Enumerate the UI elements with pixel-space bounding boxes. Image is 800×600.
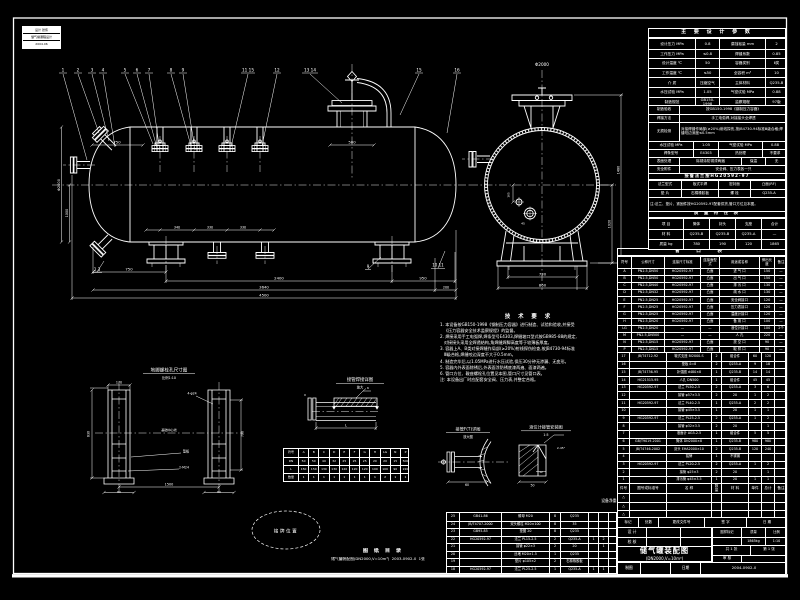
- param-table-header: 主 要 设 计 参 数: [648, 28, 786, 38]
- cell: 石棉橡胶板: [681, 190, 718, 197]
- cell: 14: [761, 369, 774, 376]
- cell: GB/T9019-2001: [629, 439, 666, 446]
- nozzle-length-table: 符号ABCDEFGHLGNPDN50504032252525202015500L…: [283, 448, 409, 482]
- cell: 32: [329, 458, 339, 465]
- cell: 对接焊缝作局部(≥20%)射线探伤,按JB4730-94标准Ⅲ级合格;焊缝咬边深…: [679, 123, 786, 141]
- table-row: 12接管 φ57×3.522012: [618, 391, 785, 399]
- cell: 不要求: [762, 150, 786, 157]
- cell: 液面计 AG5-2.5: [666, 431, 711, 438]
- cell: 100: [369, 466, 379, 473]
- cell: [774, 423, 786, 430]
- cell: 制图: [618, 563, 640, 574]
- table-row: GPN2.5,DN25HG20592-97凸面温度计接口120—: [618, 311, 785, 318]
- note-line: 注: 本设备出厂时应配套安全阀、压力表,并整定合格。: [440, 377, 618, 383]
- cell: HG20592-97: [629, 400, 666, 407]
- notes-title: 技 术 要 求: [440, 312, 618, 322]
- annotation: 330: [207, 226, 213, 230]
- annotation: 12: [274, 68, 280, 73]
- tank-head-right: [415, 127, 456, 242]
- annotation: 2400: [274, 276, 284, 281]
- technical-notes: 技 术 要 求 1. 本设备按GB150-1998《钢制压力容器》进行制造、试验…: [440, 312, 618, 383]
- cell: 备注: [774, 257, 786, 268]
- table-row: L15015013013012012012010010090220: [284, 465, 408, 473]
- cell: JB/T4746-2002: [629, 446, 666, 453]
- cell: 3: [618, 462, 629, 469]
- cell: [774, 431, 786, 438]
- cell: 3: [748, 385, 761, 392]
- cell: 1: [711, 454, 721, 461]
- cell: [608, 567, 617, 574]
- cell: 组合件: [721, 431, 748, 438]
- cell: [774, 454, 786, 461]
- cell: 1: [711, 408, 721, 415]
- cell: [774, 469, 786, 476]
- annotation: 9: [367, 264, 370, 269]
- cell: 1: [298, 474, 308, 481]
- cell: 工作温度 ℃: [649, 69, 695, 78]
- annotation: 2-M24: [179, 466, 189, 470]
- cell: 40: [318, 458, 328, 465]
- cell: Q235-A: [721, 385, 748, 392]
- annotation: 200: [443, 286, 449, 290]
- drawing-index-entry: 储气罐装配图(DN2000,V=10m³) 2003-0902-0 1张: [302, 557, 454, 563]
- cell: 接管 φ25×3: [666, 469, 711, 476]
- cell: [629, 454, 666, 461]
- annotation: 1: [62, 68, 65, 73]
- design-parameters-table: 设计压力 MPa0.8腐蚀裕量 mm2工作压力 MPa≤0.8焊缝系数0.85设…: [648, 38, 786, 107]
- stamp-row: 2004.06: [23, 40, 60, 47]
- cell: 不锈钢: [721, 454, 748, 461]
- cell: 90: [390, 466, 400, 473]
- cell: [774, 439, 786, 446]
- annotation: 500: [348, 140, 356, 145]
- cell: 220: [400, 466, 409, 473]
- saddle-supports: [147, 242, 411, 263]
- cell: 12: [618, 392, 629, 399]
- cell: 全容积 m³: [719, 69, 765, 78]
- cell: 数量: [284, 474, 298, 481]
- cell: 120: [349, 466, 359, 473]
- cell: 18: [761, 362, 774, 369]
- cell: [680, 538, 712, 546]
- cell: [629, 392, 666, 399]
- cell: 补强圈 d480×8: [666, 369, 711, 376]
- bottom-nozzles: [208, 242, 274, 258]
- cell: [774, 416, 786, 423]
- annotation: 地脚螺栓孔尺寸图: [151, 367, 188, 374]
- cell: △: [618, 503, 629, 510]
- cell: 0.88: [762, 142, 786, 149]
- annotation: 接管F(T)详图: [456, 426, 481, 433]
- cell: 2: [711, 392, 721, 399]
- cell: 1: [711, 369, 721, 376]
- annotation: 6: [136, 68, 139, 73]
- cell: 50: [298, 458, 308, 465]
- cell: 190: [709, 240, 735, 249]
- cell: Q235-A: [721, 362, 748, 369]
- table-row: CPN2.5,DN40HG20592-97凸面排 污 口130—: [618, 282, 785, 289]
- cell: 25: [359, 458, 369, 465]
- cell: Q235-A: [750, 190, 786, 197]
- table-row: 15JB/T4736-95补强圈 d480×81Q235-B1414: [618, 368, 785, 376]
- annotation: 放大图: [463, 434, 473, 439]
- cell: 2: [761, 416, 774, 423]
- cell: 5: [748, 431, 761, 438]
- cell: [721, 503, 748, 510]
- annotation: 11 15: [242, 68, 254, 73]
- cell: G: [359, 449, 369, 457]
- table-row: 无损检测对接焊缝作局部(≥20%)射线探伤,按JB4730-94标准Ⅲ级合格;焊…: [649, 122, 785, 141]
- cell: 2: [618, 469, 629, 476]
- table-row: HPN2.5,DN20HG20592-97凸面备 用 口100—: [618, 318, 785, 325]
- cell: 无: [765, 158, 786, 165]
- cell: [774, 385, 786, 392]
- cell: 筒体 DN2000×8: [666, 439, 711, 446]
- annotation: 4: [102, 68, 105, 73]
- cell: [711, 494, 721, 502]
- cell: 伸出长度: [759, 257, 774, 268]
- cell: HG20592-97: [629, 385, 666, 392]
- annotation: 1000: [65, 209, 69, 217]
- cell: 日期: [670, 563, 700, 574]
- table-row: 17JB/T4712-92鞍式支座 BⅠ2000-S2组合件60120: [618, 353, 785, 361]
- cell: 25: [447, 513, 459, 521]
- table-row: 5JB/T4746-2002封头 EHA2000×102Q235-B120240: [618, 445, 785, 453]
- cell: [646, 528, 680, 537]
- cell: 1.05: [695, 88, 719, 97]
- table-row: 13HG20592-97法兰 PL50-2.52Q235-A36: [618, 384, 785, 392]
- cell: [748, 454, 761, 461]
- cell: 150: [308, 466, 318, 473]
- annotation: 13 14: [304, 68, 316, 73]
- cell: GB41-86: [459, 513, 501, 521]
- cell: 8: [618, 423, 629, 430]
- stamp-row: 储气罐课程设计: [23, 33, 60, 40]
- cell: 人孔 DN500: [666, 377, 711, 384]
- cell: 120: [359, 466, 369, 473]
- table-row: 2接管 φ25×32201: [618, 468, 785, 476]
- cell: 2004-0902-0: [700, 563, 786, 574]
- cell: 1: [598, 567, 608, 574]
- cell: 2: [765, 39, 786, 49]
- cell: [721, 494, 748, 502]
- table-row: 16垫板 δ=82Q235-A918: [618, 361, 785, 369]
- cell: C: [318, 449, 328, 457]
- cell: 2: [748, 400, 761, 407]
- cell: P: [400, 449, 409, 457]
- cell: 接管 φ57×3.5: [666, 392, 711, 399]
- cell: 45: [748, 377, 761, 384]
- cell: 安全附件: [649, 166, 679, 173]
- cell: [629, 423, 666, 430]
- cell: [774, 503, 786, 510]
- cell: 50: [308, 458, 318, 465]
- table-row: 6GB/T9019-2001筒体 DN2000×81Q235-B980980: [618, 438, 785, 446]
- cell: Q235-B: [721, 446, 748, 453]
- table-row: 符号ABCDEFGHLGNP: [284, 449, 408, 457]
- annotation: 1:5: [543, 433, 548, 437]
- cell: 0.88: [765, 88, 786, 97]
- annotation: 50: [530, 483, 534, 487]
- cell: [629, 408, 666, 415]
- cell: Q235-B: [709, 230, 735, 239]
- cell: D: [329, 449, 339, 457]
- cell: [774, 369, 786, 376]
- cell: 9: [748, 362, 761, 369]
- cell: 130: [329, 466, 339, 473]
- cell: 11: [618, 400, 629, 407]
- cell: 气密试验 MPa: [719, 88, 765, 97]
- cell: 质量: [741, 528, 765, 537]
- cell: 铭牌: [666, 454, 711, 461]
- level-gauge-detail: [517, 431, 571, 484]
- annotation: 液位计接管安装图: [529, 424, 563, 431]
- annotation: L: [345, 424, 347, 428]
- table-row: 设 计: [618, 528, 711, 537]
- cell: 10: [765, 69, 786, 78]
- cell: 120: [761, 353, 774, 361]
- table-row: 安全附件安全阀、压力表各一只: [649, 165, 785, 173]
- cell: 1: [711, 431, 721, 438]
- cell: 17: [618, 353, 629, 361]
- cell: 密封面: [718, 181, 750, 189]
- table-row: 21接管 φ22×32201: [447, 543, 616, 551]
- table-row: DPN2.5,DN32HG20592-97凸面疏 水 口130—: [618, 289, 785, 296]
- cell: 制造验收: [649, 106, 679, 114]
- table-row: MPN2.5,DN500——人 孔220—: [618, 332, 785, 339]
- cell: [646, 538, 680, 546]
- table-row: 水压试验 MPa1.05气密试验 MPa0.88: [649, 141, 785, 149]
- cell: Q235-B: [765, 78, 786, 87]
- annotation: 12: [539, 470, 543, 474]
- annotation: 750: [113, 140, 121, 145]
- tank-head-left: [89, 127, 130, 242]
- table-row: 4铭牌1不锈钢: [618, 453, 785, 461]
- cell: [598, 513, 608, 521]
- table-row: 焊条型号E4303热处理不要求: [649, 149, 785, 157]
- cell: 设计温度 ℃: [649, 59, 695, 68]
- annotation: 铭牌位置: [274, 528, 298, 535]
- table-row: 项 目筒体封头支座合计: [649, 219, 785, 229]
- cell: 接管 φ32×3.5: [666, 423, 711, 430]
- table-row: 表面处理除锈涂防锈漆两遍保温无: [649, 157, 785, 165]
- titleblock-signatures: 设 计校 核: [617, 527, 712, 547]
- cell: Q235-B: [721, 439, 748, 446]
- cell: 焊接方法: [649, 115, 679, 122]
- cell: F: [349, 449, 359, 457]
- cell: 封头 EHA2000×10: [666, 446, 711, 453]
- cell: 共 1 张: [713, 546, 750, 555]
- cell: 0.85: [765, 50, 786, 59]
- cell: HG21515-95: [629, 377, 666, 384]
- cell: 1: [588, 567, 598, 574]
- cell: [608, 513, 617, 521]
- cell: 符号: [618, 257, 631, 268]
- annotation: 730: [539, 272, 547, 277]
- table-row: 水压试验 MPa1.05气密试验 MPa0.88: [649, 87, 785, 97]
- top-nozzle-flanges: [152, 143, 268, 152]
- cell: 150: [298, 466, 308, 473]
- cell: 1: [390, 474, 400, 481]
- table-row: 介 质压缩空气主体材料Q235-B: [649, 77, 785, 87]
- cell: ≤50: [695, 69, 719, 78]
- cell: 凸面(RF): [750, 181, 786, 189]
- extension-lines: [72, 95, 623, 300]
- annotation: 2 3: [94, 267, 101, 272]
- cell: 图样标记: [713, 528, 741, 537]
- cell: 20: [380, 458, 390, 465]
- cell: [629, 503, 666, 510]
- cell: [629, 494, 666, 502]
- cell: 安全阀、压力表各一只: [679, 166, 786, 173]
- cell: [640, 563, 670, 574]
- manhole-bent-pipe: [357, 79, 391, 128]
- cell: 16: [618, 362, 629, 369]
- cell: 1: [339, 474, 349, 481]
- cell: 符号: [284, 449, 298, 457]
- annotation: 45: [521, 222, 525, 226]
- cell: 公称尺寸: [631, 257, 664, 268]
- annotation: 80: [217, 490, 221, 494]
- cell: [774, 362, 786, 369]
- cell: E: [339, 449, 349, 457]
- cell: [774, 400, 786, 407]
- cell: 14: [748, 369, 761, 376]
- cell: 980: [761, 439, 774, 446]
- annotation: 165: [507, 192, 511, 198]
- cell: 6: [761, 385, 774, 392]
- cell: [774, 494, 786, 502]
- annotation: 放大: [357, 385, 364, 390]
- cell: 法兰 PL20-2.5: [666, 462, 711, 469]
- cell: 螺母 M20: [501, 513, 549, 521]
- cell: 接管 φ45×3.5: [666, 408, 711, 415]
- cell: 主体材料: [719, 78, 765, 87]
- table-row: 9HG20592-97法兰 PL25-2.52Q235-A12: [618, 415, 785, 423]
- table-row: 10接管 φ45×3.512011: [618, 407, 785, 415]
- annotation: 2: [77, 68, 80, 73]
- annotation: 950: [419, 276, 427, 281]
- cell: 合计: [761, 219, 786, 229]
- cell: [588, 513, 598, 521]
- table-row: BPN2.5,DN50HG20592-97凸面出 气 口150—: [618, 275, 785, 282]
- cell: 容器类别: [719, 59, 765, 68]
- cell: 法兰 PL50-2.5: [666, 385, 711, 392]
- cell: △: [618, 494, 629, 502]
- titleblock-drawing-name: 储气罐装配图: [617, 546, 712, 556]
- cell: 7: [618, 431, 629, 438]
- cell: [774, 446, 786, 453]
- cell: 2: [711, 462, 721, 469]
- cell: 材 料: [649, 230, 683, 239]
- cell: JB/T4736-95: [629, 369, 666, 376]
- cell: Ⅱ类: [765, 59, 786, 68]
- cell: 垫 片: [649, 190, 681, 197]
- cell: 鞍式支座 BⅠ2000-S: [666, 353, 711, 361]
- cell: 1: [359, 474, 369, 481]
- cell: 1: [748, 462, 761, 469]
- cell: 项 目: [649, 219, 683, 229]
- nozzle-table: 符号公称尺寸连接尺寸标准连接面型式用途或名称伸出长度备注APN2.5,DN50H…: [617, 256, 786, 354]
- annotation: Φ2000: [57, 178, 61, 191]
- cell: [666, 503, 711, 510]
- cell: Q235-A: [560, 567, 588, 574]
- cell: 50: [695, 59, 719, 68]
- revision-rows: △△△: [617, 493, 786, 519]
- cell: [774, 353, 786, 361]
- cell: [774, 392, 786, 399]
- cell: H: [369, 449, 379, 457]
- cell: 筒体: [683, 219, 709, 229]
- cell: 1: [349, 474, 359, 481]
- annotation: 750: [125, 267, 133, 272]
- table-row: DN50504032252525202015500: [284, 457, 408, 465]
- cell: 设 计: [618, 528, 646, 537]
- table-row: 14HG21515-95人孔 DN5001组合件4545: [618, 376, 785, 384]
- cell: [748, 423, 761, 430]
- annotation: 5: [124, 68, 127, 73]
- cell: Q235-A: [721, 400, 748, 407]
- table-row: 19垫片 φ105×22石棉橡胶板: [447, 558, 616, 566]
- table-row: 校 核: [618, 537, 711, 546]
- cell: 保温: [741, 158, 765, 165]
- cell: 20: [369, 458, 379, 465]
- table-row: 8接管 φ32×3.52201: [618, 422, 785, 430]
- table-row: 质量 kg7801901201865: [649, 239, 785, 249]
- dimension-lines: [60, 93, 623, 300]
- cell: 8: [549, 513, 560, 521]
- cell: 质量 kg: [649, 240, 683, 249]
- table-row: 22HG20592-97法兰 PL15-2.52Q235-A12: [447, 536, 616, 544]
- cell: [761, 494, 774, 502]
- annotation: 2-45°: [557, 446, 566, 450]
- cell: [629, 431, 666, 438]
- cell: 1: [318, 474, 328, 481]
- cell: 2: [711, 423, 721, 430]
- cell: 25: [349, 458, 359, 465]
- cell: 连接面型式: [700, 257, 719, 268]
- top-nozzle-stems: [157, 127, 263, 152]
- cell: 1: [549, 567, 560, 574]
- cell: 压缩空气: [695, 78, 719, 87]
- cell: 介 质: [649, 78, 695, 87]
- cell: Q235-A: [735, 230, 761, 239]
- tank-shell: [130, 127, 415, 242]
- cell: 2: [761, 392, 774, 399]
- cell: Q235-A: [721, 462, 748, 469]
- cell: 120: [748, 446, 761, 453]
- cell: [748, 494, 761, 502]
- annotation: 16: [454, 68, 460, 73]
- anchor-bolt-detail: [90, 373, 243, 494]
- cell: 1: [400, 474, 409, 481]
- cell: 1: [748, 392, 761, 399]
- annotation: 330: [240, 226, 246, 230]
- cell: 工作压力 MPa: [649, 50, 695, 59]
- titleblock-marks: 图样标记质量比例1865kg1:10: [712, 527, 786, 547]
- end-side-nozzle: [469, 152, 490, 168]
- annotation: 比例1:10: [162, 375, 176, 380]
- annotation: 10 11: [432, 263, 444, 268]
- cell: 20: [721, 469, 748, 476]
- cell: 20: [721, 408, 748, 415]
- cell: 2: [761, 400, 774, 407]
- table-row: FPN2.5,DN25HG20592-97凸面压力表接口120—: [618, 303, 785, 310]
- cell: 表面处理: [649, 158, 679, 165]
- table-row: 焊接方法手工电弧焊,对接接头全焊透: [649, 114, 785, 122]
- cell: 100: [380, 466, 390, 473]
- cell: [629, 362, 666, 369]
